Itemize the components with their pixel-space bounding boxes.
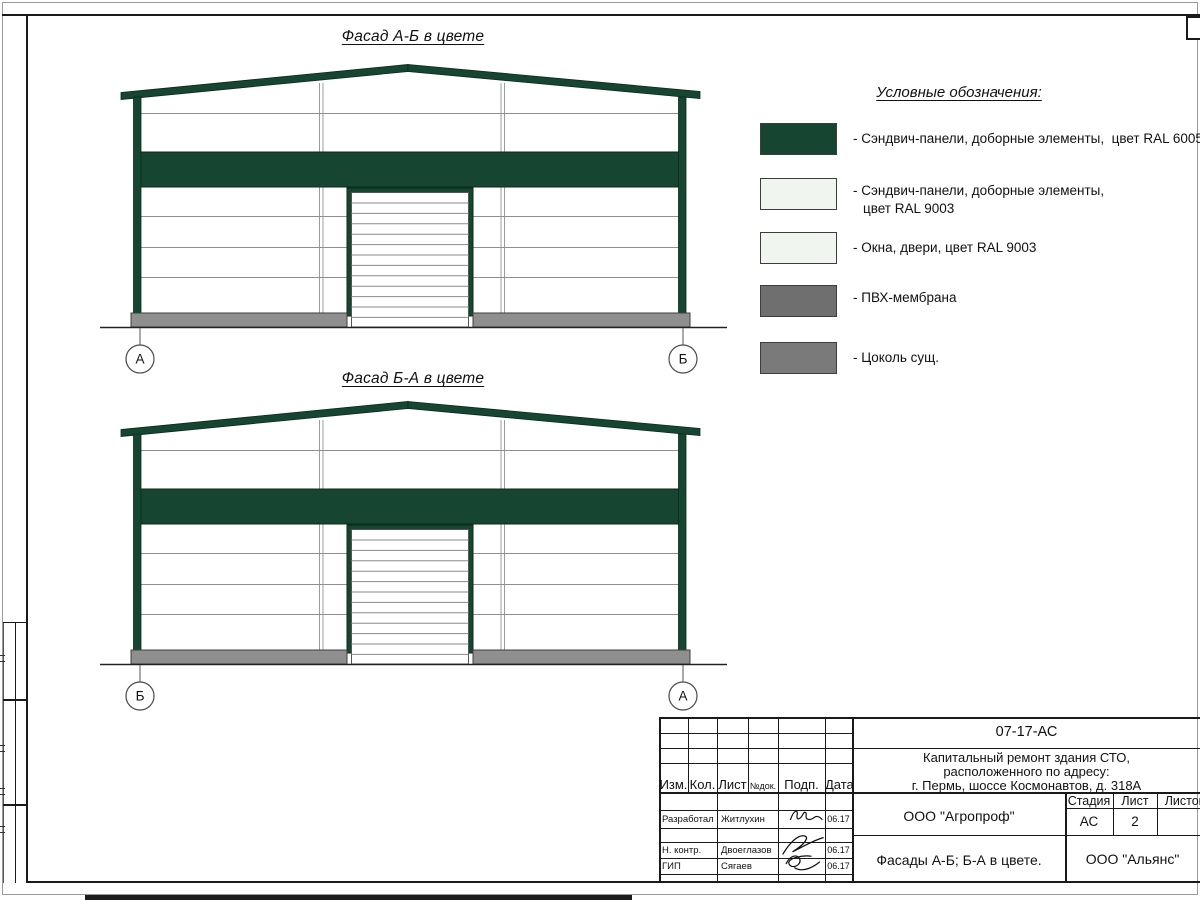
cut-text-fragment	[0, 745, 5, 752]
legend-label: - Сэндвич-панели, доборные элементы, цве…	[853, 130, 1200, 148]
left-column	[134, 434, 142, 650]
accent-band	[137, 152, 682, 187]
org-name: ООО "Агропроф"	[853, 808, 1065, 824]
col-header-podp: Подп.	[778, 777, 825, 792]
project-description-line1: Капитальный ремонт здания СТО,	[853, 750, 1200, 765]
legend-label: - Цоколь сущ.	[853, 349, 939, 367]
left-column	[134, 97, 142, 313]
legend-swatch-membrane	[760, 285, 837, 317]
drawing-title: Фасады А-Б; Б-А в цвете.	[853, 852, 1065, 868]
corner-stamp-cell	[1186, 16, 1200, 40]
col-header-izm: Изм.	[659, 777, 688, 792]
legend-label: - Окна, двери, цвет RAL 9003	[853, 239, 1036, 257]
side-stamp-line	[3, 804, 26, 806]
signature-1-icon	[785, 803, 826, 828]
row-date: 06.17	[825, 861, 852, 871]
title-block-line	[1065, 808, 1200, 809]
legend-label: - ПВХ-мембрана	[853, 289, 957, 307]
right-column	[679, 97, 687, 313]
right-column	[679, 434, 687, 650]
legend-swatch-ral6005	[760, 123, 837, 155]
row-name: Двоеглазов	[721, 845, 772, 856]
plinth-right	[473, 313, 690, 327]
facade-structure: А Б	[100, 65, 727, 374]
row-date: 06.17	[825, 814, 852, 824]
frame-top-line	[2, 14, 1200, 16]
col-header-list: Лист	[717, 777, 748, 792]
col-header-ndok: №док.	[748, 781, 778, 791]
scan-artifact	[85, 895, 632, 900]
title-block-line	[717, 717, 718, 883]
title-block-line	[659, 874, 852, 875]
contractor-name: ООО "Альянс"	[1065, 851, 1200, 867]
plinth-left	[131, 650, 347, 664]
legend-label-line2: цвет RAL 9003	[863, 200, 954, 218]
facade-ab-title: Фасад А-Б в цвете	[288, 28, 538, 46]
doc-number: 07-17-АС	[853, 724, 1200, 740]
row-name: Сягаев	[721, 861, 752, 872]
facade-ab-drawing: А Б	[88, 48, 733, 378]
title-block-line	[853, 835, 1200, 836]
row-role: Н. контр.	[662, 845, 701, 856]
legend-swatch-plinth	[760, 342, 837, 374]
cut-text-fragment	[0, 788, 5, 795]
sheets-label: Листов	[1157, 794, 1200, 808]
stage-label: Стадия	[1065, 794, 1113, 808]
title-block-line	[659, 748, 1200, 749]
row-role: ГИП	[662, 861, 681, 872]
facade-ba-drawing: Б А	[88, 385, 733, 715]
project-description-line2: расположенного по адресу:	[853, 764, 1200, 779]
plinth-right	[473, 650, 690, 664]
axis-marker-right: А	[678, 689, 687, 704]
stage-value: АС	[1065, 814, 1113, 829]
legend-label: - Сэндвич-панели, доборные элементы,	[853, 182, 1104, 200]
axis-marker-left: Б	[136, 689, 145, 704]
sheet-number: 2	[1113, 814, 1157, 829]
title-block-line	[825, 717, 826, 883]
col-header-kol: Кол.	[688, 777, 717, 792]
legend-title: Условные обозначения:	[844, 84, 1074, 101]
col-header-data: Дата	[825, 777, 852, 792]
row-role: Разработал	[662, 814, 714, 825]
title-block-line	[659, 717, 1200, 719]
cut-text-fragment	[0, 826, 5, 833]
axis-marker-right: Б	[679, 352, 688, 367]
accent-band	[137, 489, 682, 524]
side-stamp-line	[15, 622, 16, 883]
side-stamp-line	[3, 699, 26, 701]
row-date: 06.17	[825, 845, 852, 855]
side-stamp-line	[3, 622, 26, 623]
cut-text-fragment	[0, 655, 5, 662]
facade-structure: Б А	[100, 402, 727, 711]
project-description-line3: г. Пермь, шоссе Космонавтов, д. 318А	[853, 778, 1200, 793]
frame-left-line	[26, 14, 28, 883]
legend-swatch-ral9003	[760, 178, 837, 210]
axis-marker-left: А	[135, 352, 144, 367]
drawing-sheet: Фасад А-Б в цвете Фасад Б-А в цвете	[0, 0, 1200, 900]
sheet-label: Лист	[1113, 794, 1157, 808]
signature-3-icon	[779, 849, 825, 876]
row-name: Житлухин	[721, 814, 765, 825]
legend-swatch-windows	[760, 232, 837, 264]
frame-bottom-line	[26, 881, 1200, 883]
plinth-left	[131, 313, 347, 327]
